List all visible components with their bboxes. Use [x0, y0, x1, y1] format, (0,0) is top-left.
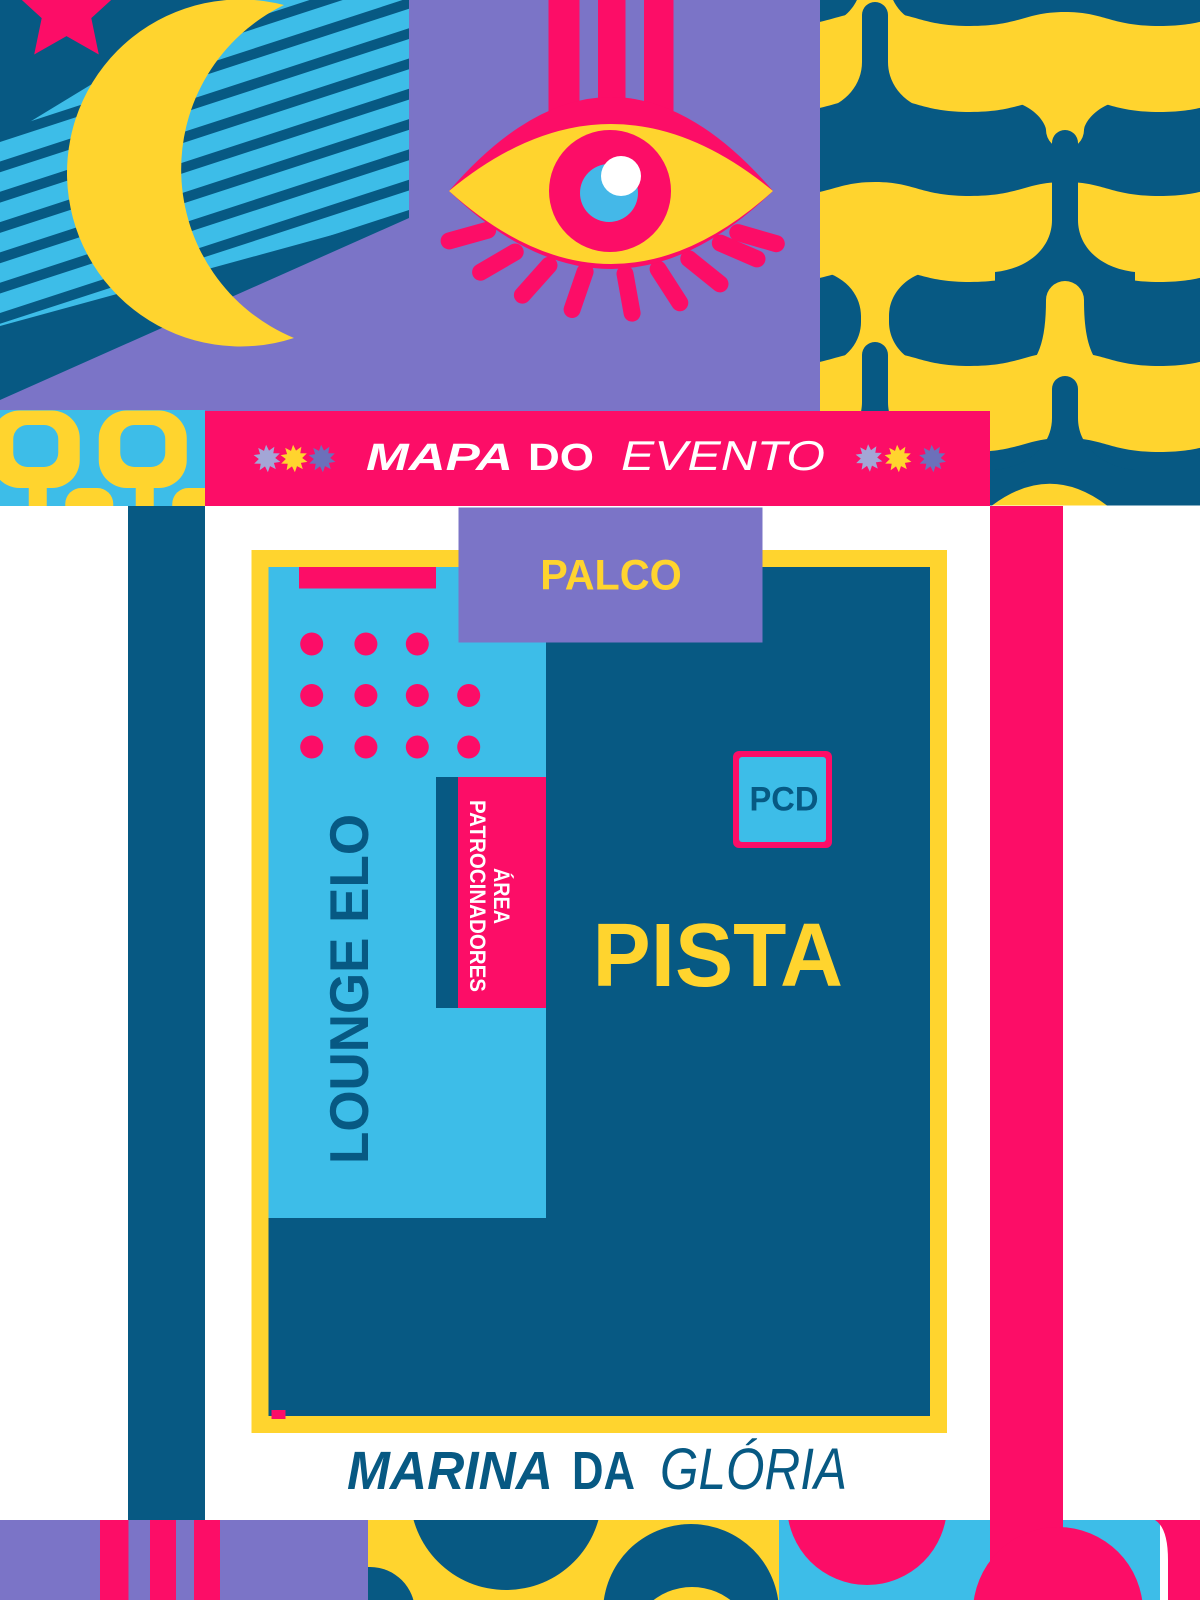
svg-text:LOUNGE ELO: LOUNGE ELO [318, 814, 380, 1164]
svg-text:PISTA: PISTA [593, 906, 844, 1006]
svg-text:PCD: PCD [750, 781, 819, 819]
svg-text:GLÓRIA: GLÓRIA [660, 1437, 847, 1502]
svg-text:PALCO: PALCO [540, 552, 682, 600]
svg-text:MARINA: MARINA [347, 1441, 553, 1501]
svg-text:EVENTO: EVENTO [621, 432, 825, 479]
svg-text:DO: DO [528, 436, 594, 479]
svg-text:MAPA: MAPA [366, 436, 513, 479]
svg-text:DA: DA [572, 1441, 635, 1501]
